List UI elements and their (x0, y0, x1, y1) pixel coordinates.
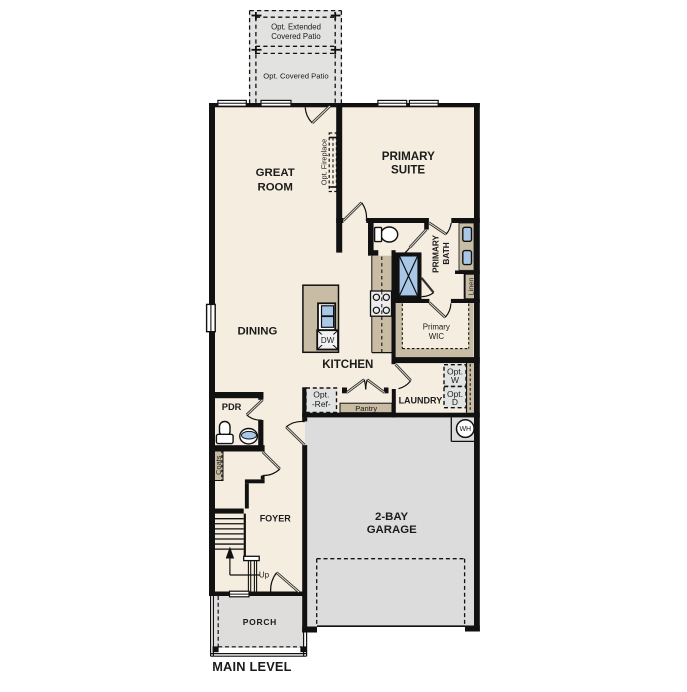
svg-text:Primary: Primary (423, 323, 450, 332)
svg-text:PRIMARY: PRIMARY (430, 234, 440, 272)
svg-text:PRIMARY: PRIMARY (382, 150, 435, 163)
svg-text:WH: WH (459, 426, 471, 433)
svg-text:Opt.: Opt. (313, 390, 329, 400)
svg-text:D: D (452, 397, 458, 407)
svg-text:Opt. Extended: Opt. Extended (271, 22, 321, 31)
svg-text:Opt. Fireplace: Opt. Fireplace (320, 139, 329, 185)
svg-text:FOYER: FOYER (260, 514, 292, 524)
svg-text:WIC: WIC (429, 332, 445, 341)
svg-text:SUITE: SUITE (391, 164, 425, 177)
svg-text:Up: Up (259, 571, 270, 580)
svg-text:LAUNDRY: LAUNDRY (399, 396, 443, 406)
svg-text:ROOM: ROOM (257, 181, 292, 193)
svg-text:W: W (451, 375, 459, 385)
svg-text:-Ref-: -Ref- (312, 399, 331, 409)
svg-text:Pantry: Pantry (355, 404, 377, 413)
svg-text:Linen: Linen (467, 277, 476, 295)
svg-text:DW: DW (321, 336, 335, 345)
svg-text:GREAT: GREAT (256, 167, 295, 179)
svg-text:2-BAY: 2-BAY (375, 511, 409, 523)
svg-text:Covered Patio: Covered Patio (271, 32, 321, 41)
svg-text:MAIN LEVEL: MAIN LEVEL (212, 659, 292, 674)
svg-text:BATH: BATH (441, 242, 451, 264)
svg-text:Opt. Covered Patio: Opt. Covered Patio (263, 71, 328, 80)
svg-text:Coats: Coats (214, 455, 223, 475)
svg-text:KITCHEN: KITCHEN (322, 359, 373, 371)
svg-text:PORCH: PORCH (243, 617, 277, 627)
svg-text:DINING: DINING (237, 326, 277, 338)
svg-text:GARAGE: GARAGE (367, 524, 417, 536)
svg-text:PDR: PDR (222, 402, 242, 412)
